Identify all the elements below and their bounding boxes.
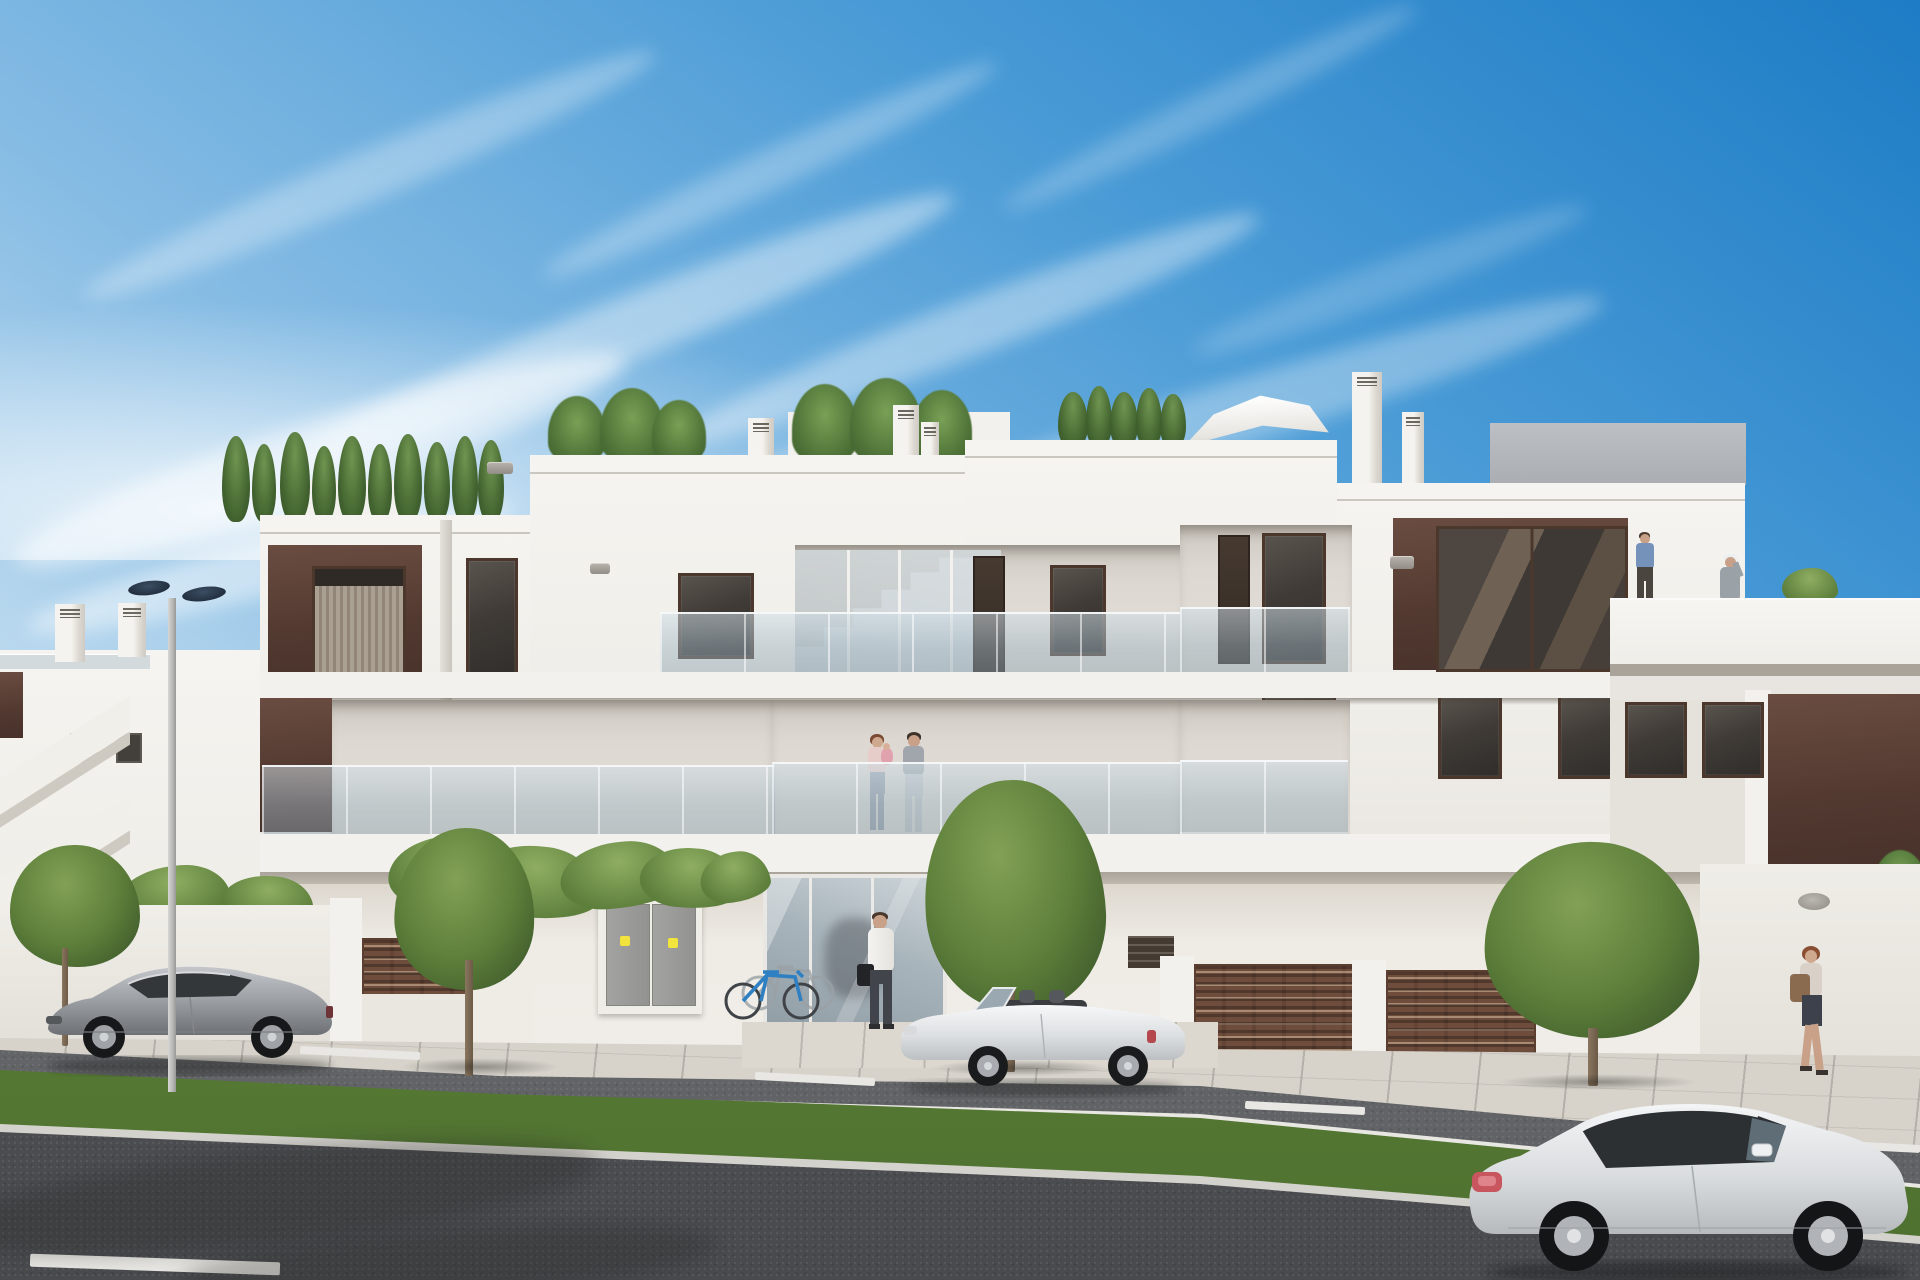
street-tree (1478, 838, 1718, 1088)
man-leg (883, 982, 892, 1025)
man-leg (870, 982, 879, 1025)
bicycle-rack-bikes (715, 935, 845, 1023)
tree-ground-shadow (400, 1058, 560, 1076)
shoe (1800, 1066, 1812, 1071)
white-convertible-car (895, 972, 1185, 1100)
walking-woman (1790, 946, 1838, 1080)
tree-canopy (1482, 838, 1704, 1041)
street-lamp-pole (168, 598, 176, 1092)
architectural-render-scene (0, 0, 1920, 1280)
silver-coupe-car (40, 950, 342, 1082)
man-head (873, 915, 887, 929)
shoe (883, 1024, 894, 1029)
woman-head (1805, 950, 1817, 963)
woman-skirt (1802, 995, 1822, 1026)
tree-canopy (10, 845, 140, 967)
road-lane-dash (755, 1072, 875, 1086)
street-tree (380, 820, 580, 1080)
shoe (1816, 1070, 1828, 1075)
white-sports-coupe-car (1456, 1086, 1920, 1280)
shoe (869, 1024, 880, 1029)
woman-leg (1810, 1024, 1824, 1071)
road-lane-dash (1245, 1101, 1365, 1115)
